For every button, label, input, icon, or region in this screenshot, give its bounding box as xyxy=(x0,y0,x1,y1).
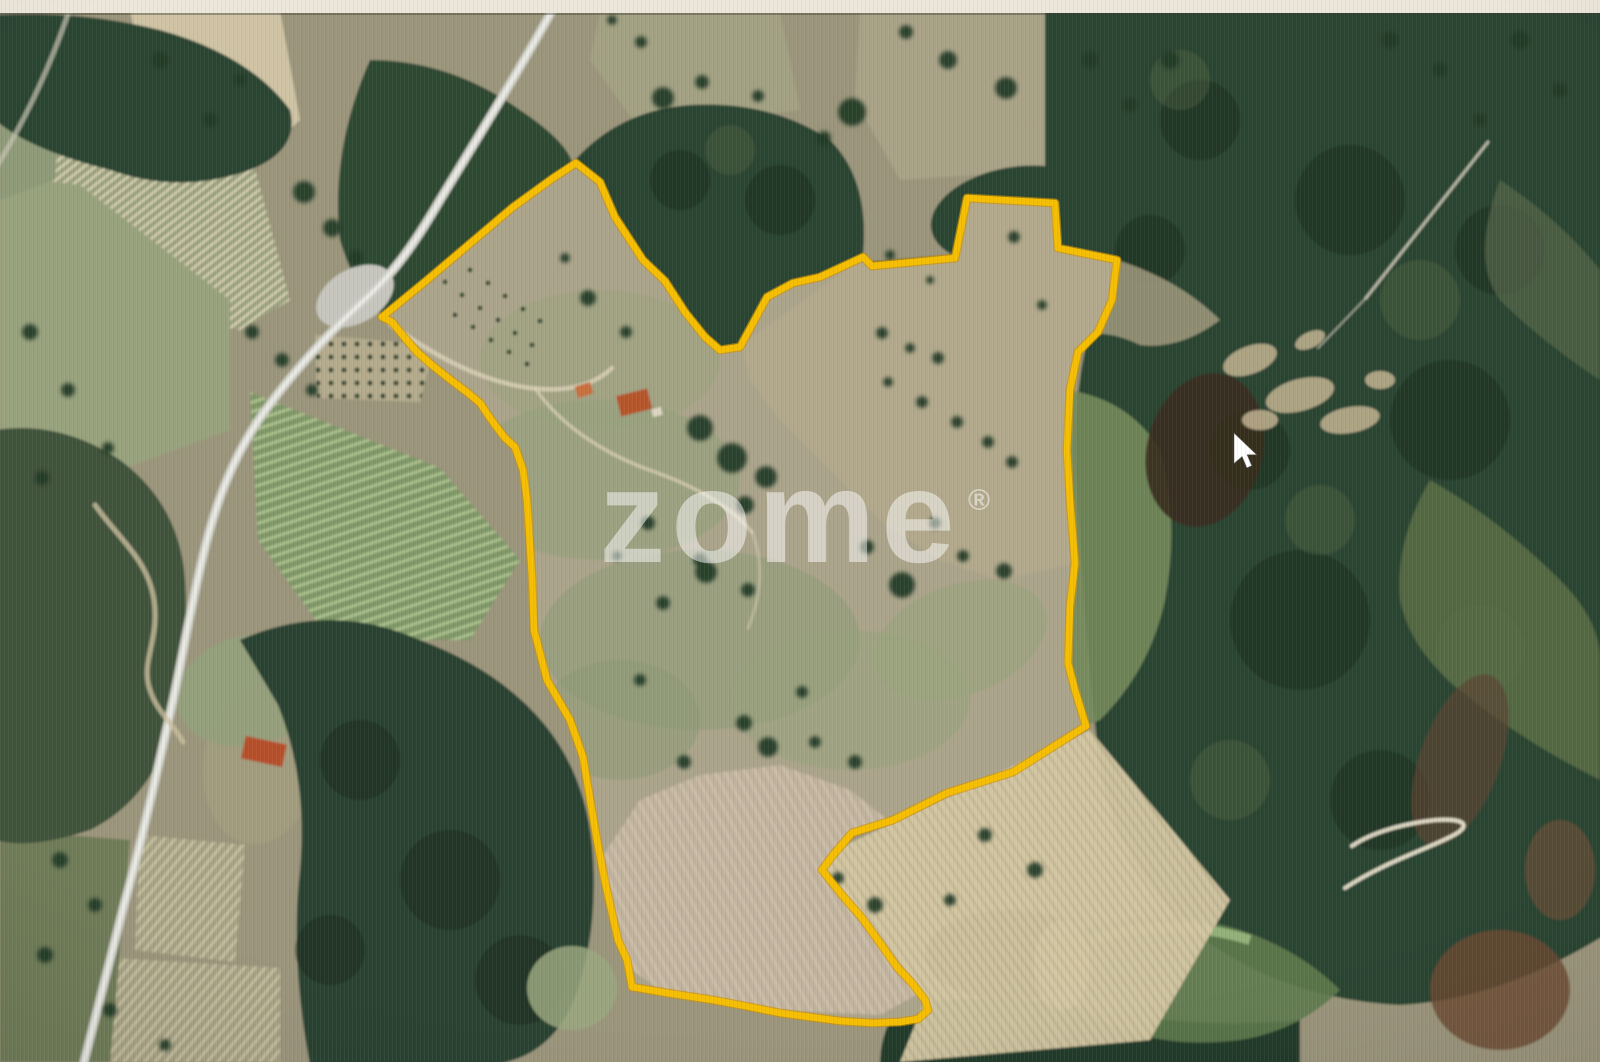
aerial-photo: zome ® xyxy=(0,0,1600,1062)
watermark-text: zome xyxy=(599,443,960,590)
watermark-registered-icon: ® xyxy=(968,484,990,517)
screen-top-edge xyxy=(0,0,1600,15)
satellite-map-view: zome ® xyxy=(0,0,1600,1062)
watermark: zome ® xyxy=(599,443,990,590)
